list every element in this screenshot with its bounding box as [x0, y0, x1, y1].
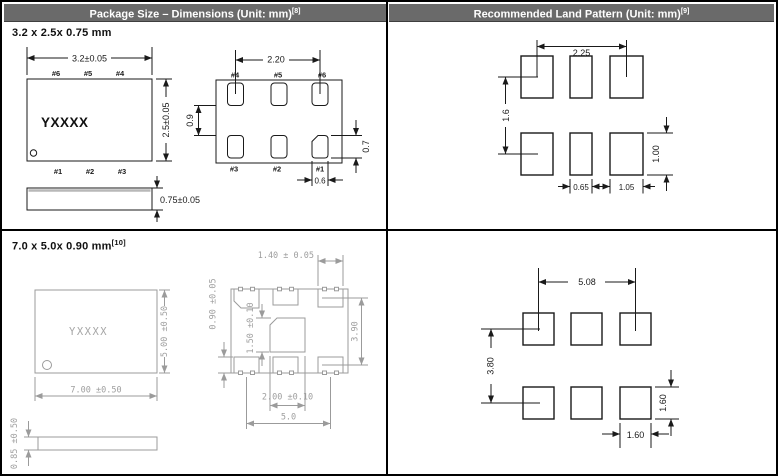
dim-land-pitch-x-label: 5.08 — [578, 277, 596, 287]
land-pad — [571, 387, 602, 419]
dim-body-thickness-label: 0.85 ±0.50 — [10, 418, 20, 469]
land-pads — [523, 313, 651, 419]
dim-body-width-label: 3.2±0.05 — [72, 54, 107, 64]
pin-label: #5 — [274, 71, 282, 80]
package-7050-bottom-view: 1.40 ± 0.05 0.90 ±0.05 1.50 ±0.10 3.90 — [209, 251, 369, 429]
package-3225-side-view: 0.75±0.05 — [27, 176, 200, 222]
dim-pad-height: 0.90 ±0.05 — [209, 278, 234, 388]
dim-land-pitch-x: 2.25 — [537, 40, 627, 77]
dim-body-height-label: 5.00 ±0.50 — [160, 306, 170, 357]
package-7050-top-view: YXXXX 5.00 ±0.50 7.00 ±0.50 0.85 ±0.50 — [10, 290, 171, 469]
pin-label: #3 — [118, 167, 126, 176]
package-3225-top-view: YXXXX 3.2±0.05 #6 #5 #4 #1 #2 #3 2.5±0.0 — [27, 47, 172, 176]
center-pad-chamfered — [270, 318, 305, 352]
pin1-marker-icon — [43, 361, 52, 370]
marking-text: YXXXX — [41, 115, 89, 130]
dim-pad-width-label: 0.6 — [314, 177, 326, 186]
dim-corner-pad-width-label: 1.40 ± 0.05 — [258, 251, 314, 261]
dim-land-pitch-x-label: 2.25 — [573, 48, 591, 58]
dim-land-pad-height: 1.60 — [655, 370, 679, 436]
dim-pad-pitch: 5.0 — [247, 377, 331, 429]
dim-land-pad-width-label: 1.60 — [627, 430, 645, 440]
pin-label: #1 — [54, 167, 62, 176]
pin-label: #4 — [116, 69, 125, 78]
pin-label: #1 — [316, 165, 324, 174]
dim-row-span: 3.90 — [322, 298, 368, 365]
pin-label: #6 — [52, 69, 60, 78]
dim-pad-height-label: 0.7 — [361, 140, 371, 153]
pad — [271, 136, 287, 159]
dim-corner-pad-width: 1.40 ± 0.05 — [258, 251, 343, 286]
dim-row-gap-label: 0.9 — [185, 114, 195, 127]
land-pattern-3225: 2.25 1.6 1.00 0.65 — [498, 40, 673, 194]
dim-land-pad-height: 1.00 — [647, 117, 673, 191]
technical-drawings: YXXXX 3.2±0.05 #6 #5 #4 #1 #2 #3 2.5±0.0 — [2, 2, 776, 474]
dim-body-height: 5.00 ±0.50 — [158, 290, 171, 373]
dim-row-gap: 0.9 — [185, 106, 216, 136]
dim-land-pitch-y-label: 3.80 — [486, 357, 496, 375]
dim-body-width-label: 7.00 ±0.50 — [70, 386, 121, 396]
dim-body-thickness-label: 0.75±0.05 — [160, 195, 200, 205]
pad — [234, 357, 259, 373]
pin-label: #3 — [230, 165, 238, 174]
dim-land-pad-width: 1.60 — [602, 423, 669, 448]
dim-pad-height-label: 0.90 ±0.05 — [209, 278, 219, 329]
dim-body-height: 2.5±0.05 — [156, 79, 172, 161]
dim-land-pad-height-label: 1.00 — [651, 145, 661, 163]
land-pad — [620, 387, 651, 419]
dim-body-height-label: 2.5±0.05 — [161, 103, 171, 138]
pin-label: #6 — [318, 71, 326, 80]
dim-land-pitch-x: 5.08 — [539, 268, 636, 331]
pad — [271, 83, 287, 106]
pads — [228, 83, 329, 158]
land-pad — [610, 133, 643, 175]
land-pattern-7050: 5.08 3.80 1.60 1.60 — [481, 268, 679, 448]
pad — [228, 136, 244, 159]
dim-center-pad-height-label: 1.50 ±0.10 — [246, 302, 256, 353]
dim-pad-pitch-label: 5.0 — [281, 413, 296, 423]
dim-center-pad-height: 1.50 ±0.10 — [246, 302, 271, 366]
dim-land-outer-pad-width: 1.05 — [598, 179, 655, 194]
dim-land-center-pad-width-label: 0.65 — [573, 183, 589, 192]
land-pad — [571, 313, 602, 345]
dim-row-span-label: 3.90 — [351, 321, 361, 341]
dim-pad-height: 0.7 — [331, 120, 371, 173]
land-pad — [570, 133, 592, 175]
dim-body-thickness: 0.75±0.05 — [152, 176, 200, 222]
pad-1-chamfered — [312, 136, 328, 159]
pin1-marker-icon — [30, 150, 36, 156]
dim-body-width: 7.00 ±0.50 — [35, 377, 157, 401]
dim-body-thickness: 0.85 ±0.50 — [10, 418, 38, 469]
dim-land-outer-pad-width-label: 1.05 — [619, 183, 635, 192]
dim-land-row-gap: 1.6 — [498, 77, 538, 154]
pin-label: #2 — [86, 167, 94, 176]
pad — [273, 289, 298, 305]
dim-land-pitch-y: 3.80 — [481, 329, 540, 403]
dim-land-pad-height-label: 1.60 — [658, 394, 668, 412]
package-side-outline — [38, 437, 157, 450]
pad — [273, 357, 298, 373]
dim-land-center-pad-width: 0.65 — [558, 179, 604, 194]
dim-center-pad-width-label: 2.00 ±0.10 — [262, 393, 313, 403]
marking-text: YXXXX — [69, 326, 108, 338]
dim-pad-pitch-label: 2.20 — [267, 55, 285, 65]
dim-land-row-gap-label: 1.6 — [501, 109, 511, 122]
land-pads — [521, 56, 643, 175]
pin-label: #2 — [273, 165, 281, 174]
datasheet-package-page: Package Size – Dimensions (Unit: mm)[8] … — [0, 0, 778, 476]
pin-label: #5 — [84, 69, 92, 78]
land-pad — [570, 56, 592, 98]
package-3225-bottom-view: #4 #5 #6 #3 #2 #1 2.20 0.9 — [185, 50, 371, 186]
